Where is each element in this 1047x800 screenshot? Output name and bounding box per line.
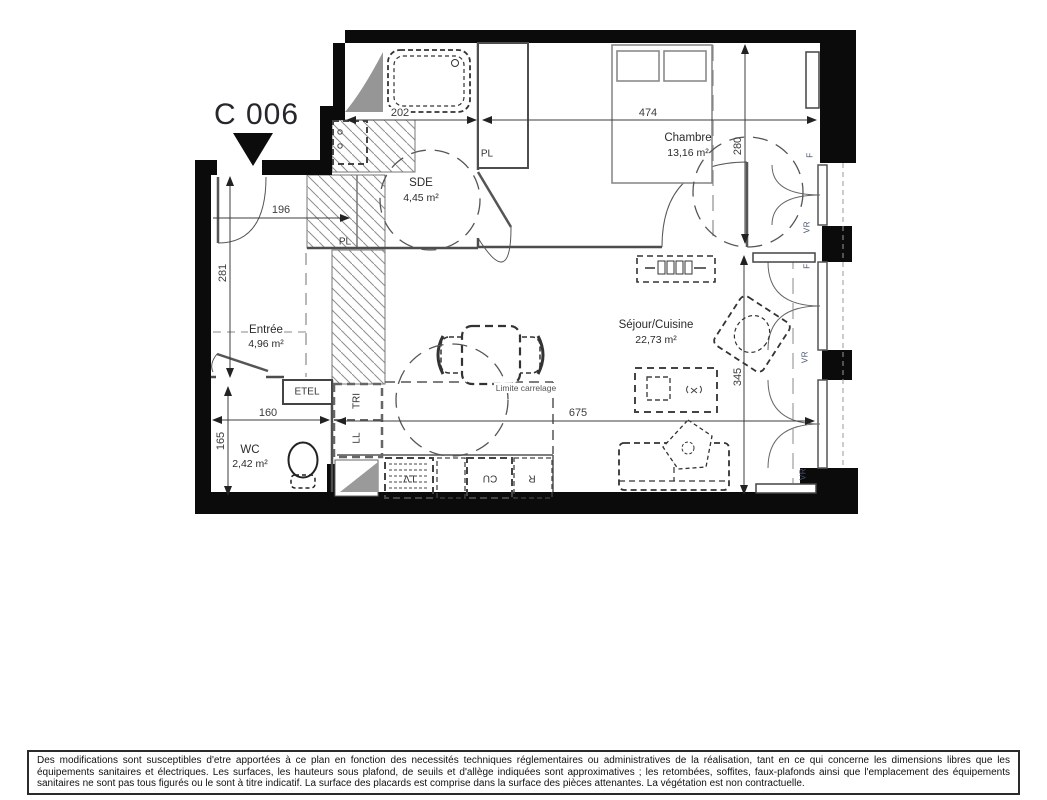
room-label-sejour: Séjour/Cuisine	[619, 319, 694, 331]
fixture-label-pl-entree: PL	[339, 237, 351, 248]
room-area-sejour: 22,73 m²	[635, 334, 676, 346]
fixture-label-etel: ETEL	[294, 387, 319, 398]
shutter-label-vr1: VR	[803, 221, 812, 233]
room-label-sde: SDE	[409, 177, 433, 189]
tv-unit-icon	[635, 368, 717, 412]
dim-label-wc-depth: 165	[215, 432, 227, 450]
dim-label-entree-depth: 281	[217, 264, 229, 282]
dim-label-wc-width: 160	[257, 407, 279, 419]
unit-title: C 006	[214, 98, 299, 132]
fixture-label-r: R	[528, 473, 535, 484]
shutter-label-vr3: VR	[799, 468, 808, 480]
dim-label-entree-width: 196	[270, 204, 292, 216]
exterior-stair-wedge	[345, 52, 383, 112]
room-area-sde: 4,45 m²	[403, 192, 439, 204]
room-label-entree: Entrée	[249, 324, 283, 336]
shutter-label-vr2: VR	[801, 351, 810, 363]
fixture-label-ll: LL	[352, 432, 363, 443]
dim-label-sejour-depth: 345	[732, 368, 744, 386]
tile-limit-label: Limite carrelage	[494, 383, 558, 393]
disclaimer-text: Des modifications sont susceptibles d'et…	[27, 750, 1020, 795]
radiator-icon-sejour	[753, 253, 816, 493]
window-label-f1: F	[806, 152, 815, 157]
room-area-wc: 2,42 m²	[232, 458, 268, 470]
dining-set-icon	[438, 326, 543, 384]
windows	[818, 165, 827, 468]
bed-icon	[612, 45, 712, 183]
fixture-label-lv: LV	[403, 473, 415, 484]
toilet-icon	[289, 443, 318, 489]
window-label-f2: F	[803, 263, 812, 268]
accessibility-circles	[380, 137, 803, 456]
room-area-chambre: 13,16 m²	[667, 147, 708, 159]
sideboard-icon	[637, 256, 715, 282]
plant-icon	[663, 420, 712, 469]
room-label-wc: WC	[240, 444, 259, 456]
dim-label-sejour-width: 675	[567, 407, 589, 419]
radiator-icon-chambre	[806, 52, 819, 108]
shower-icon	[388, 50, 470, 112]
unit-entrance-marker-icon	[233, 133, 273, 166]
armchair-icon	[712, 294, 792, 374]
window-swing-arcs	[768, 165, 820, 468]
fixture-label-tri: TRI	[352, 393, 363, 409]
dim-label-sde-width: 202	[389, 107, 411, 119]
floor-plan-drawing	[0, 0, 1047, 745]
floor-plan-page: C 006 Chambre 13,16 m² SDE 4,45 m² Entré…	[0, 0, 1047, 800]
room-label-chambre: Chambre	[664, 132, 711, 144]
dim-label-chambre-width: 474	[637, 107, 659, 119]
fixture-label-cu: CU	[483, 473, 497, 484]
room-area-entree: 4,96 m²	[248, 338, 284, 350]
dim-label-chambre-depth: 280	[732, 137, 744, 155]
fixture-label-pl-chambre: PL	[481, 149, 493, 160]
